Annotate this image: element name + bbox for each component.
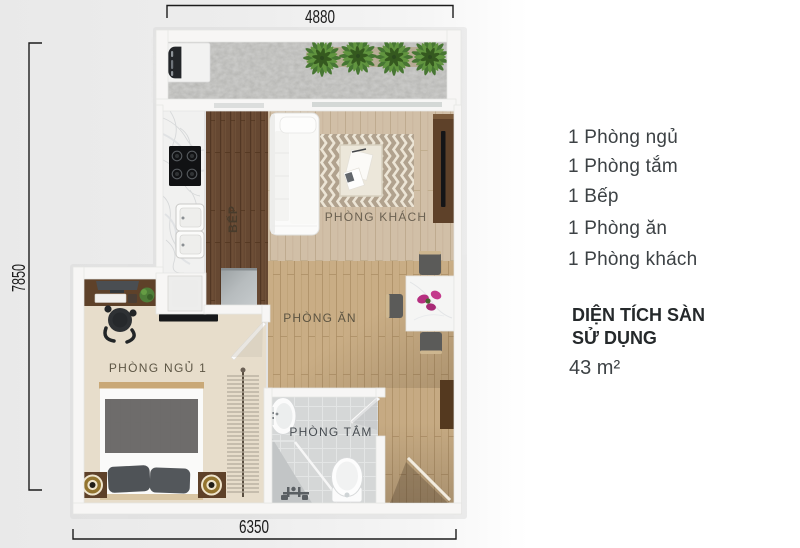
- svg-text:PHÒNG NGỦ 1: PHÒNG NGỦ 1: [109, 360, 207, 375]
- svg-text:4880: 4880: [305, 7, 335, 27]
- svg-text:6350: 6350: [239, 517, 269, 537]
- svg-text:BẾP: BẾP: [225, 205, 240, 233]
- svg-text:PHÒNG TẮM: PHÒNG TẮM: [289, 424, 372, 439]
- svg-text:PHÒNG ĂN: PHÒNG ĂN: [283, 310, 357, 325]
- svg-text:PHÒNG KHÁCH: PHÒNG KHÁCH: [325, 209, 428, 224]
- svg-text:7850: 7850: [9, 264, 29, 292]
